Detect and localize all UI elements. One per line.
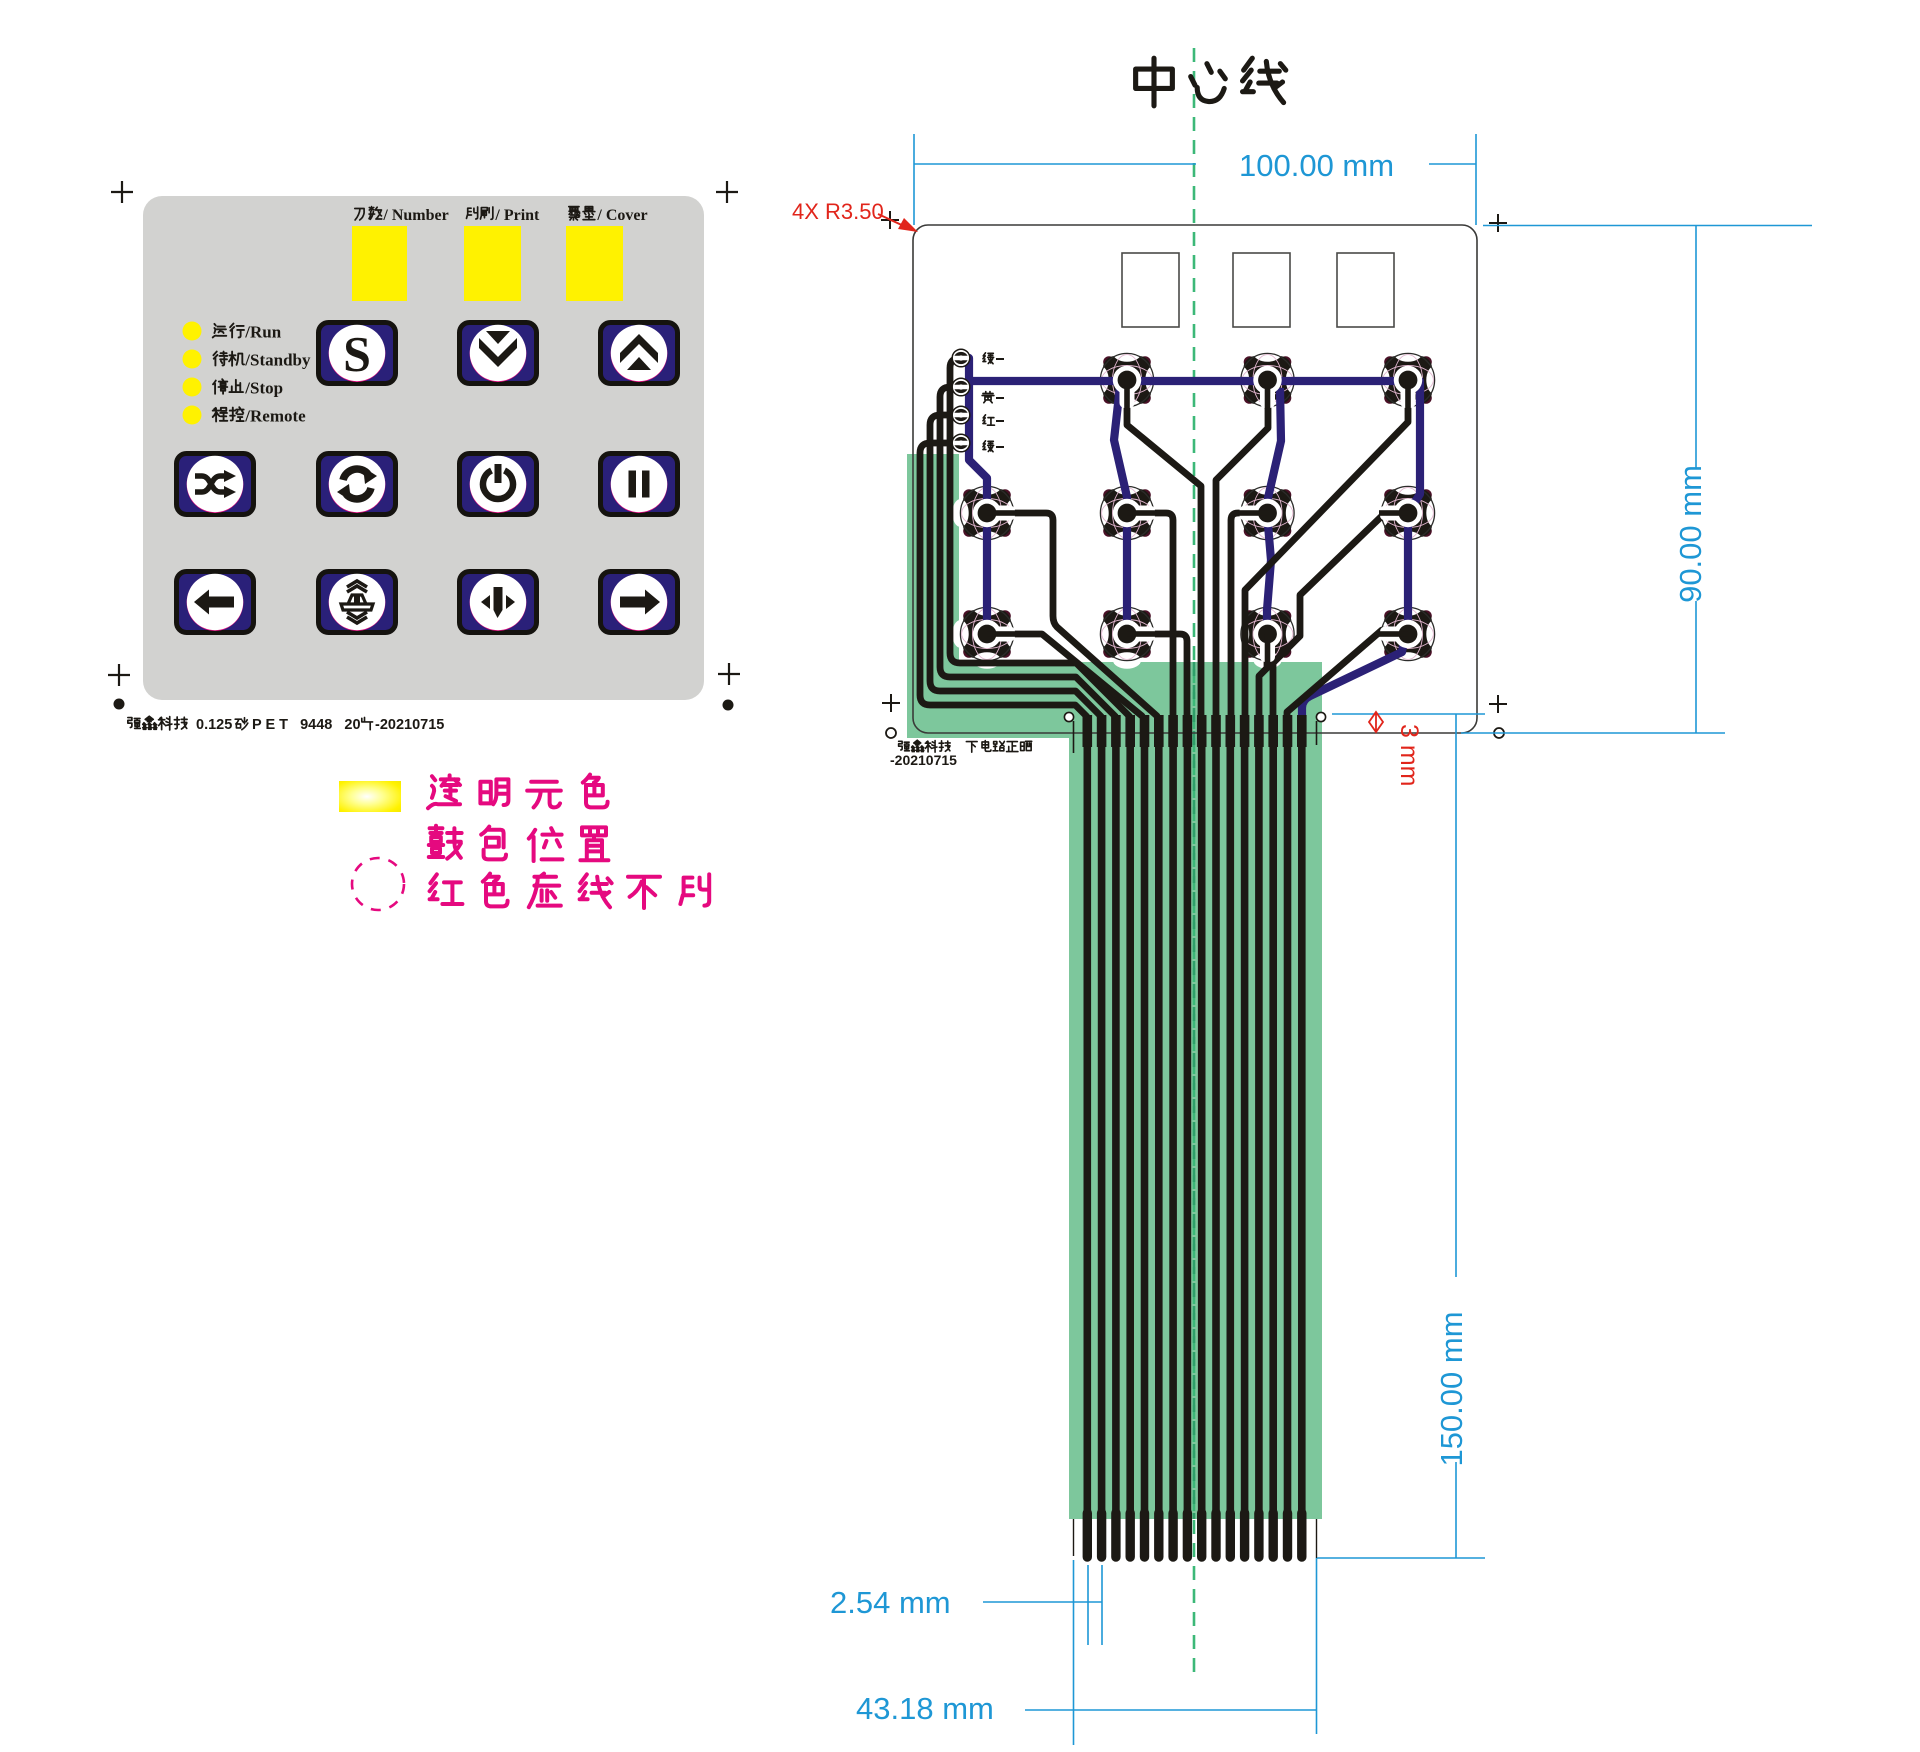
svg-text:3 mm: 3 mm [1395,724,1423,787]
svg-text:43.18 mm: 43.18 mm [856,1691,994,1726]
svg-text:150.00 mm: 150.00 mm [1434,1311,1469,1466]
svg-text:S: S [343,326,371,382]
svg-text:/Run: /Run [244,323,281,342]
svg-text:0.125: 0.125 [196,717,232,733]
svg-text:/Stop: /Stop [244,379,283,398]
svg-text:/ Print: / Print [494,207,540,224]
svg-text:/Remote: /Remote [244,407,306,426]
svg-text:-20210715: -20210715 [375,717,444,733]
svg-text:90.00 mm: 90.00 mm [1673,465,1708,603]
svg-text:2.54 mm: 2.54 mm [830,1585,951,1620]
svg-text:/Standby: /Standby [244,351,311,370]
svg-text:-20210715: -20210715 [890,752,957,768]
svg-text:100.00 mm: 100.00 mm [1239,148,1394,183]
svg-text:4X R3.50: 4X R3.50 [792,199,884,224]
svg-text:P E T 9448 20: P E T 9448 20 [252,717,361,733]
svg-text:/ Cover: / Cover [596,207,647,224]
svg-text:/ Number: / Number [382,207,448,224]
